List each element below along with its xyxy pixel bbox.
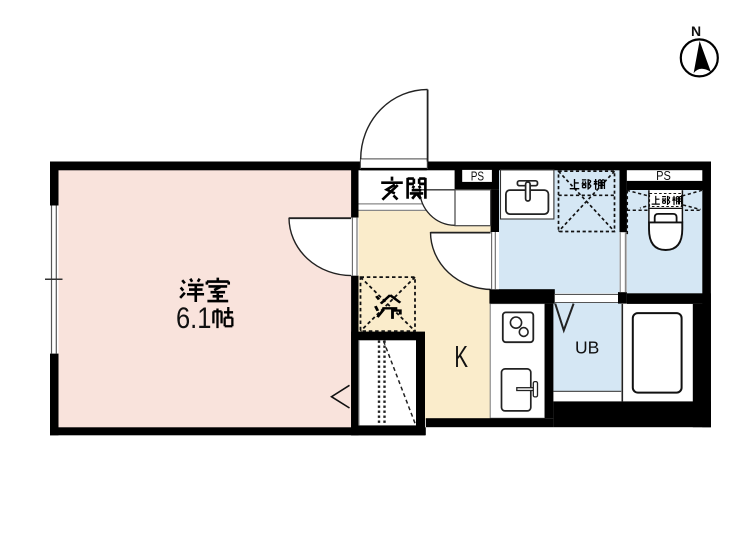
svg-text:UB: UB xyxy=(575,337,599,357)
svg-text:PS: PS xyxy=(656,168,671,183)
svg-text:PS: PS xyxy=(471,170,485,183)
svg-text:6.1: 6.1 xyxy=(176,301,211,334)
svg-text:N: N xyxy=(691,23,701,39)
svg-text:K: K xyxy=(454,339,468,374)
